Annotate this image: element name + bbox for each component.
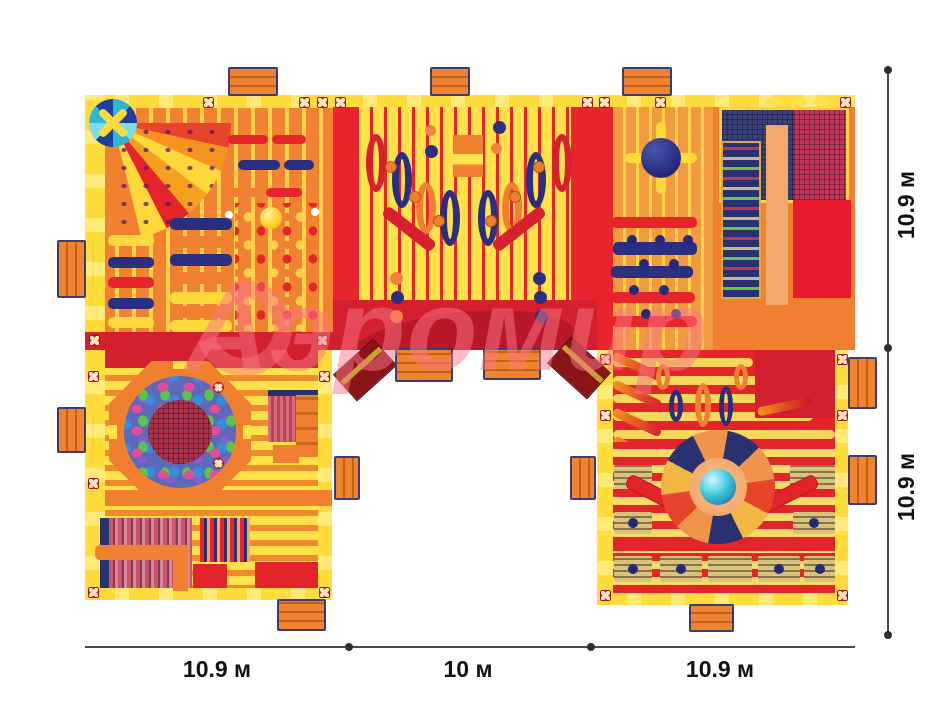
tan-slat-block: [804, 556, 835, 582]
dimension-label-bottom-middle: 10 м: [398, 656, 538, 682]
short-bar: [238, 160, 280, 170]
dimension-dot: [587, 643, 595, 651]
grip-ball: [627, 235, 637, 245]
center-step-block: [453, 135, 483, 177]
walkway-beam: [173, 545, 188, 591]
dimension-label-right-bottom: 10.9 м: [893, 432, 919, 542]
platform-tab-right: [848, 357, 877, 409]
rung-bar: [108, 277, 154, 288]
white-dot: [311, 208, 319, 216]
salmon-beam: [766, 125, 788, 305]
dimension-dot: [884, 631, 892, 639]
dimension-line-bottom: [85, 646, 855, 648]
bolt-icon: [88, 478, 99, 489]
platform-tab-top: [228, 67, 278, 96]
platform-tab-bottom: [277, 599, 326, 631]
bolt-icon: [203, 97, 214, 108]
net-red: [794, 110, 846, 200]
wall-right: [835, 350, 848, 605]
bolt-icon: [599, 97, 610, 108]
dot: [774, 564, 784, 574]
dimension-label-bottom-left: 10.9 м: [147, 656, 287, 682]
bolt-icon: [335, 97, 346, 108]
bolt-icon: [655, 97, 666, 108]
mesh-panel: [200, 518, 250, 562]
bolt-icon: [837, 354, 848, 365]
tan-slat-block: [708, 556, 752, 582]
dot: [809, 518, 819, 528]
grip-ball: [533, 161, 545, 173]
grip-ball: [509, 191, 521, 203]
rope-ladder: [721, 141, 761, 299]
rung-bar: [170, 218, 232, 230]
dot: [815, 564, 825, 574]
platform-tab-right: [848, 455, 877, 505]
grip-ball: [409, 191, 421, 203]
scallop-edge: [762, 95, 834, 108]
bolt-icon: [600, 590, 611, 601]
tan-slat-block: [758, 556, 800, 582]
climb-ring-orange: [416, 182, 436, 234]
climb-ring-red: [366, 134, 386, 192]
short-bar: [230, 188, 260, 197]
step-block: [296, 395, 318, 457]
tan-slat-block: [614, 556, 652, 582]
climb-ring-red: [552, 134, 572, 192]
bolt-icon: [319, 587, 330, 598]
climb-bar-red: [611, 217, 697, 228]
bolt-icon: [213, 458, 224, 469]
climb-ring-orange: [734, 364, 748, 390]
dimension-dot: [884, 66, 892, 74]
side-platform: [334, 456, 360, 500]
dot: [628, 518, 638, 528]
bolt-icon: [89, 335, 100, 346]
watermark: Аэромир: [185, 272, 709, 388]
bolt-icon: [317, 97, 328, 108]
grip-ball: [683, 235, 693, 245]
tan-slat-block: [614, 512, 652, 534]
platform-tab-top: [622, 67, 672, 96]
playground-plan-canvas: 10.9 м 10.9 м 10.9 м 10 м 10.9 м Аэромир: [0, 0, 940, 705]
tan-slat-block: [793, 512, 835, 534]
short-bar: [272, 135, 306, 144]
bolt-icon: [582, 97, 593, 108]
trampoline-center: [148, 400, 212, 464]
bolt-icon: [837, 590, 848, 601]
red-block: [193, 564, 227, 588]
dimension-dot: [884, 344, 892, 352]
platform-tab-left: [57, 407, 86, 453]
carousel: [661, 430, 775, 544]
bolt-icon: [88, 587, 99, 598]
grip-ball: [433, 215, 445, 227]
dot: [628, 564, 638, 574]
platform-tab-left: [57, 240, 86, 298]
rung-bar: [108, 298, 154, 309]
short-bar: [228, 135, 268, 144]
orange-divider: [105, 490, 332, 506]
rung-bar: [108, 235, 154, 246]
spinner-ball-icon: [641, 138, 681, 178]
rung-bar: [170, 236, 232, 248]
dot: [493, 121, 506, 134]
bolt-icon: [840, 97, 851, 108]
red-slide-area: [793, 200, 851, 298]
dimension-dot: [345, 643, 353, 651]
dot: [676, 564, 686, 574]
wall-top: [333, 95, 597, 107]
octagon-connector: [243, 425, 251, 439]
tan-slat-block: [660, 556, 702, 582]
rung-bar: [108, 257, 154, 268]
dimension-label-bottom-right: 10.9 м: [650, 656, 790, 682]
dimension-line-right: [887, 70, 889, 635]
step-block: [273, 445, 299, 463]
yellow-ball: [260, 207, 282, 229]
rung-bar: [108, 317, 154, 328]
grip-ball: [385, 161, 397, 173]
bolt-icon: [299, 97, 310, 108]
pinwheel-icon: [89, 99, 137, 147]
dot: [491, 143, 502, 154]
dot: [425, 145, 438, 158]
bolt-icon: [88, 371, 99, 382]
carousel-gem: [700, 469, 736, 505]
red-block: [255, 562, 318, 588]
dot: [425, 125, 436, 136]
side-platform: [570, 456, 596, 500]
grip-ball: [485, 215, 497, 227]
octagon-connector: [109, 425, 117, 439]
short-bar: [266, 188, 302, 197]
bolt-icon: [837, 410, 848, 421]
bolt-icon: [600, 410, 611, 421]
dimension-label-right-top: 10.9 м: [893, 150, 919, 260]
short-bar: [284, 160, 314, 170]
grip-ball: [655, 235, 665, 245]
platform-tab-top: [430, 67, 470, 96]
platform-tab-bottom: [689, 604, 734, 632]
climb-ring-navy: [719, 386, 733, 426]
